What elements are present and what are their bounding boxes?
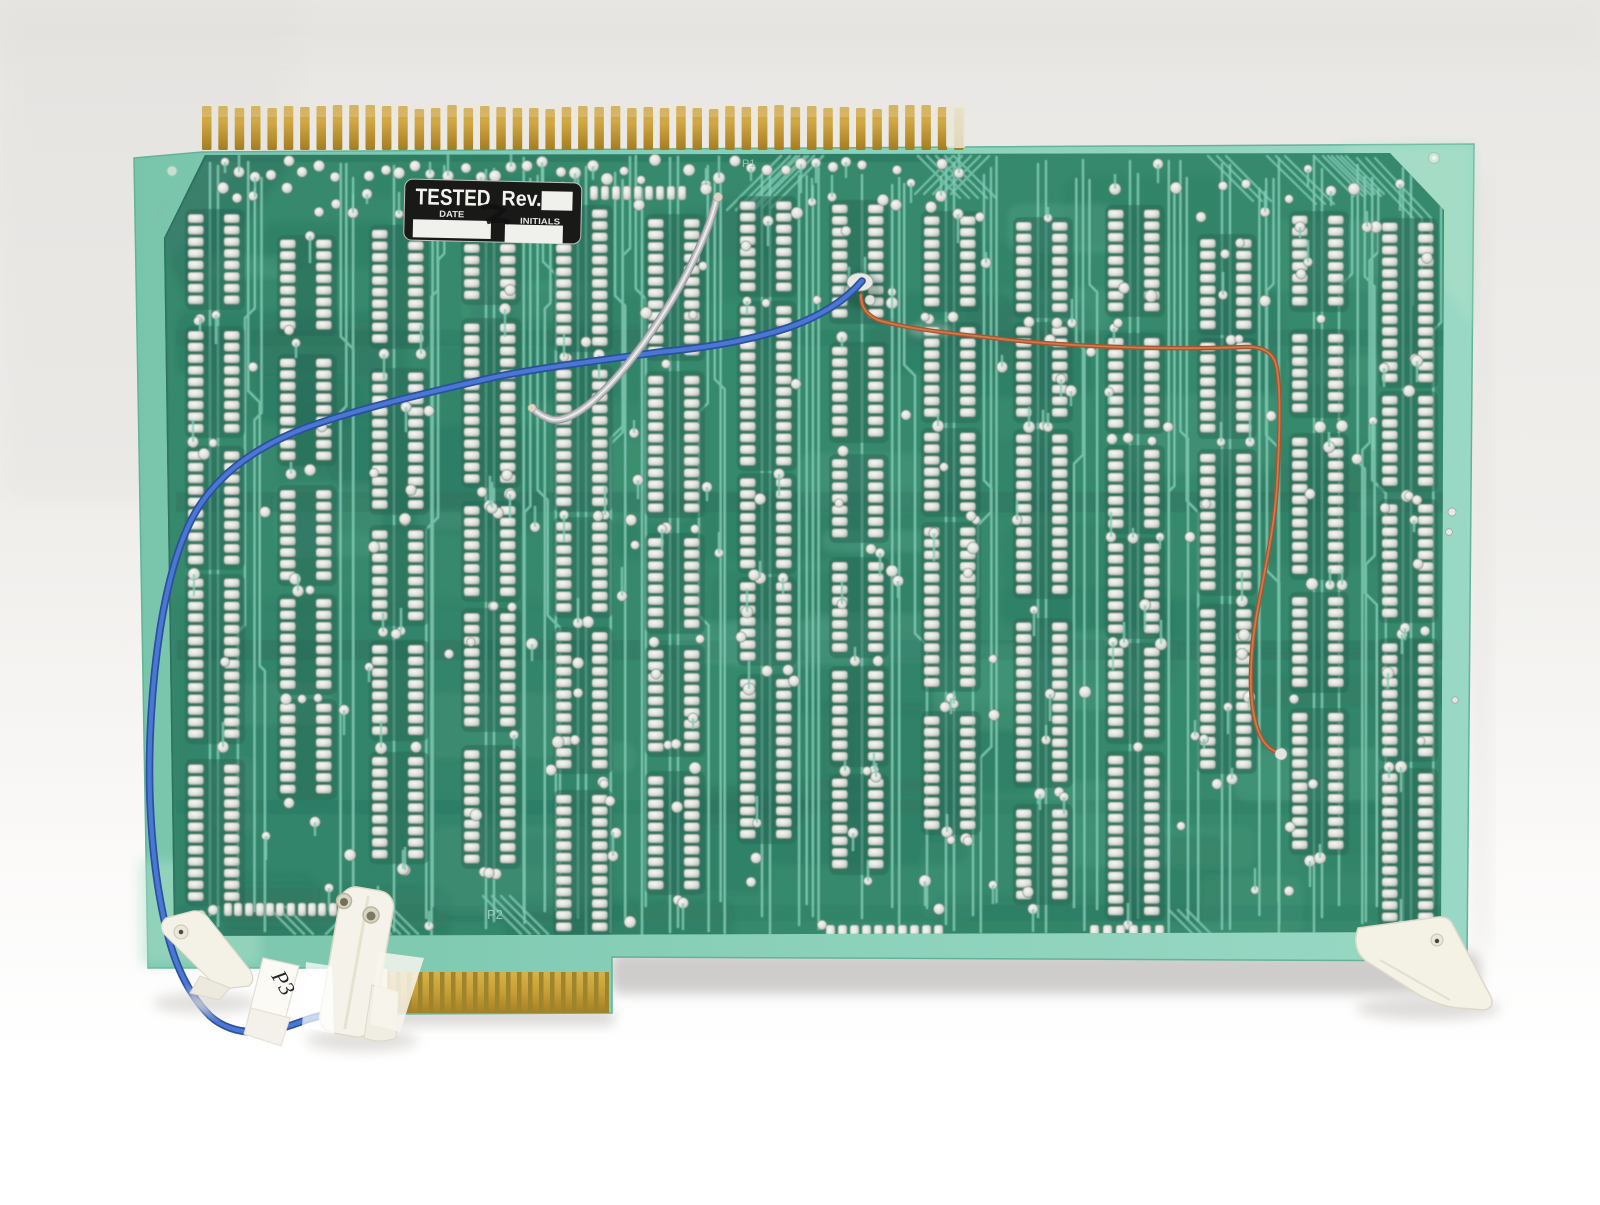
- svg-text:Rev.: Rev.: [501, 187, 542, 211]
- svg-text:P2: P2: [487, 907, 503, 922]
- svg-text:P1: P1: [742, 158, 755, 170]
- svg-text:DATE: DATE: [439, 209, 464, 220]
- svg-text:TESTED: TESTED: [415, 183, 491, 211]
